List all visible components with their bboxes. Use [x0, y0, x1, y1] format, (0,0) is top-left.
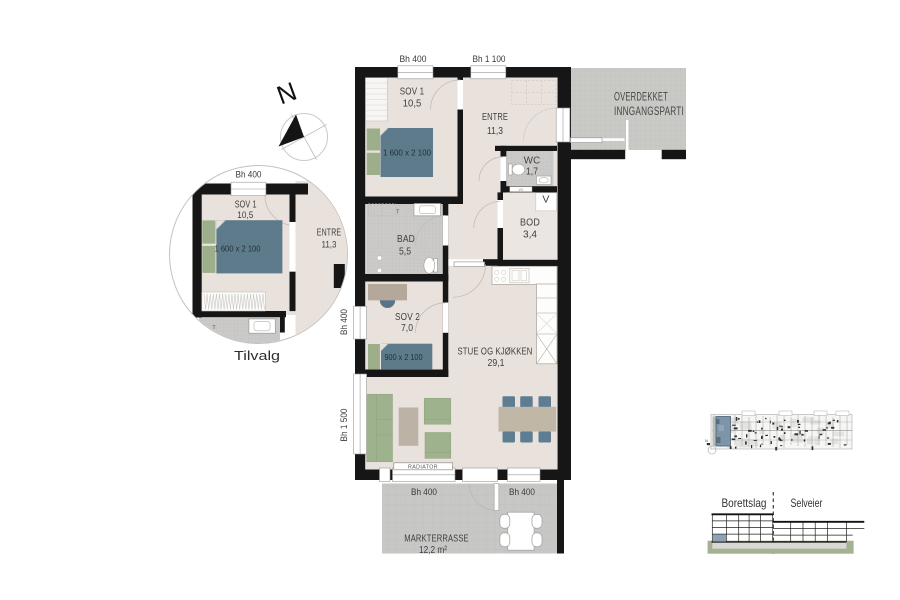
svg-text:1 600 x 2 100: 1 600 x 2 100: [215, 245, 262, 254]
svg-text:VV: VV: [519, 188, 524, 192]
svg-text:Borettslag: Borettslag: [722, 496, 767, 510]
svg-text:900 x 2 100: 900 x 2 100: [385, 353, 424, 362]
svg-text:Tilvalg: Tilvalg: [234, 348, 280, 363]
svg-text:10,5: 10,5: [237, 210, 253, 221]
svg-text:3,4: 3,4: [523, 229, 537, 241]
svg-text:11,3: 11,3: [487, 125, 503, 137]
svg-text:SOV 1: SOV 1: [400, 86, 425, 98]
svg-text:29,1: 29,1: [488, 357, 505, 369]
svg-text:Bh 400: Bh 400: [339, 309, 350, 335]
svg-text:Bh 400: Bh 400: [509, 487, 535, 498]
svg-text:Bh 400: Bh 400: [411, 487, 437, 498]
svg-text:ENTRE: ENTRE: [317, 227, 342, 239]
svg-text:RADIATOR: RADIATOR: [408, 465, 438, 471]
svg-text:MARKTERRASSE: MARKTERRASSE: [404, 533, 469, 545]
svg-text:BOD: BOD: [520, 217, 540, 229]
svg-text:Bh 1 500: Bh 1 500: [339, 409, 350, 442]
svg-text:BAD: BAD: [397, 233, 415, 245]
svg-text:Selveier: Selveier: [791, 496, 823, 510]
svg-text:OVERDEKKET: OVERDEKKET: [614, 90, 668, 104]
svg-text:10,5: 10,5: [403, 98, 422, 110]
svg-text:T: T: [212, 325, 215, 331]
svg-text:1,7: 1,7: [526, 166, 538, 178]
svg-text:Bh 400: Bh 400: [400, 54, 427, 65]
svg-text:12,2 m²: 12,2 m²: [419, 544, 447, 556]
svg-text:SOV 1: SOV 1: [235, 199, 257, 211]
svg-text:11,3: 11,3: [322, 240, 337, 251]
svg-text:V: V: [542, 194, 549, 206]
svg-text:INNGANGSPARTI: INNGANGSPARTI: [614, 104, 684, 118]
svg-text:Bh 400: Bh 400: [236, 170, 262, 181]
svg-text:5,5: 5,5: [399, 246, 411, 258]
svg-text:1 600 x 2 100: 1 600 x 2 100: [383, 148, 432, 157]
svg-text:ENTRE: ENTRE: [482, 111, 508, 123]
svg-text:Bh 1 100: Bh 1 100: [473, 54, 506, 65]
svg-text:N: N: [705, 438, 708, 443]
svg-text:7,0: 7,0: [401, 322, 413, 334]
svg-text:STUE OG KJØKKEN: STUE OG KJØKKEN: [458, 346, 533, 358]
